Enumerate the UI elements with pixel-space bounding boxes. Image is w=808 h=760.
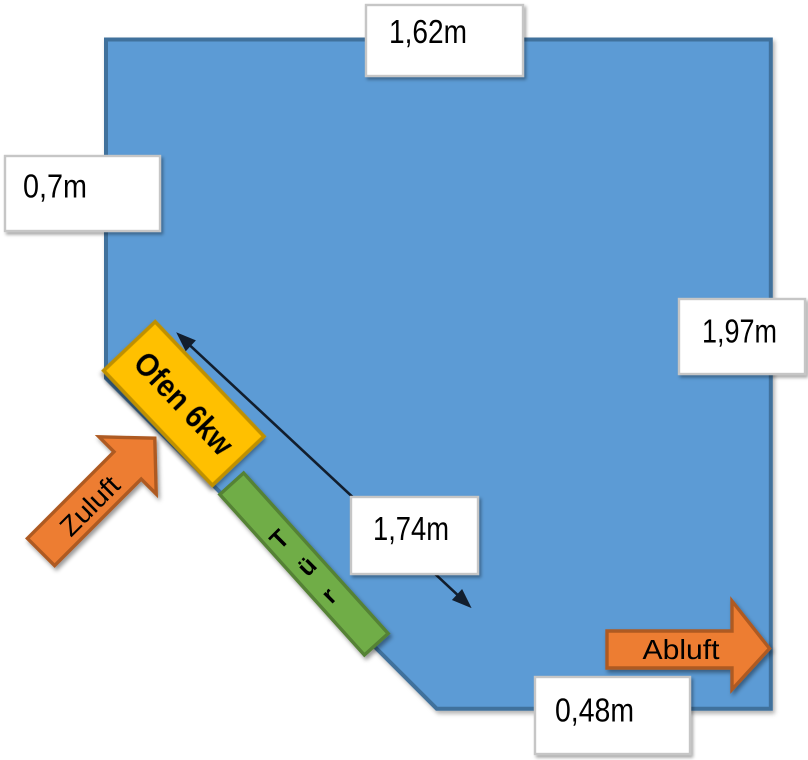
svg-text:1,97m: 1,97m (702, 313, 777, 350)
svg-text:1,74m: 1,74m (373, 510, 449, 547)
svg-text:0,7m: 0,7m (23, 168, 87, 205)
svg-text:1,62m: 1,62m (389, 13, 467, 50)
svg-text:Abluft: Abluft (643, 634, 720, 665)
svg-text:0,48m: 0,48m (555, 692, 634, 729)
